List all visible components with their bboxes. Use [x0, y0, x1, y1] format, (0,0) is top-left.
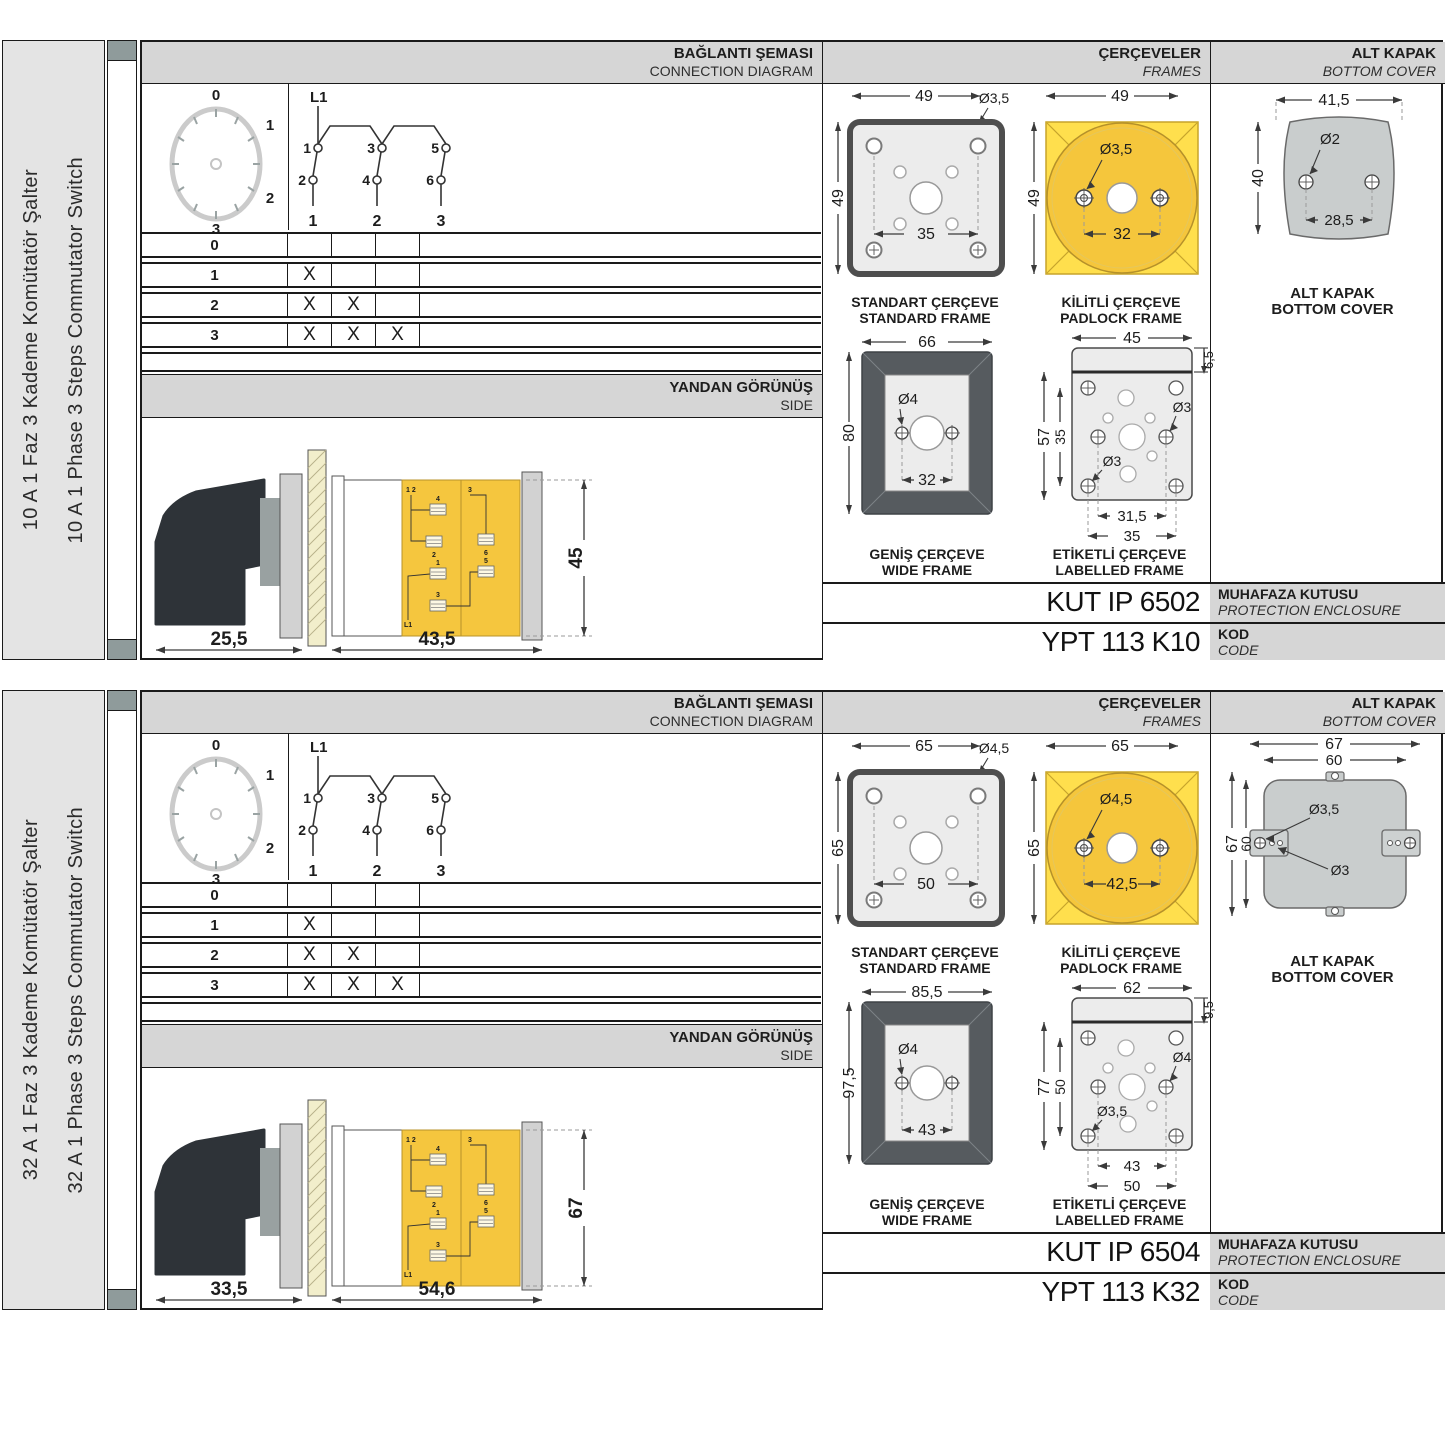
caption-en: WIDE FRAME [842, 562, 1012, 578]
mark-cell: X [288, 974, 332, 996]
rotary-dial-diagram: 0 1 2 3 [150, 86, 290, 236]
wide-frame-caption: GENİŞ ÇERÇEVE WIDE FRAME [842, 546, 1012, 578]
caption-en: LABELLED FRAME [1022, 1212, 1217, 1228]
header-title-tr: ÇERÇEVELER [823, 695, 1201, 713]
side-view-header: YANDAN GÖRÜNÜŞ SIDE [142, 1024, 822, 1068]
handle-hub [260, 1148, 280, 1236]
terminal-label: 4 [436, 496, 440, 503]
dim-width: 66 [918, 334, 936, 351]
dim-height: 97,5 [842, 1067, 858, 1098]
mounting-panel [308, 1100, 326, 1296]
labelled-frame-drawing: 62 9,5 [1022, 980, 1217, 1194]
mark-cell: X [332, 294, 376, 316]
switch-circuit-diagram: L1 1 3 5 2 4 6 1 2 [292, 86, 592, 234]
handle-hub [260, 498, 280, 586]
bottom-cover-caption: ALT KAPAK BOTTOM COVER [1220, 954, 1445, 986]
table-row: 2 X X [142, 942, 821, 968]
contact-5-label: 5 [431, 140, 439, 156]
standard-frame-drawing: 65 Ø4,5 65 50 [830, 736, 1020, 941]
mark-cell [332, 914, 376, 936]
caption-tr: ALT KAPAK [1220, 954, 1445, 970]
dim-hole: Ø4,5 [1100, 791, 1133, 808]
mark-cell [376, 884, 420, 906]
dim-hole: Ø4 [898, 391, 918, 408]
side-label-column: 32 A 1 Faz 3 Kademe Komütatör Şalter 32 … [2, 690, 105, 1310]
enclosure-code-value: KUT IP 6504 [823, 1234, 1210, 1272]
wide-frame-drawing: 85,5 Ø4 97,5 43 [842, 984, 1012, 1194]
position-cell: 3 [142, 974, 288, 996]
position-cell: 0 [142, 884, 288, 906]
standard-frame-caption: STANDART ÇERÇEVE STANDARD FRAME [830, 294, 1020, 326]
label-tr: MUHAFAZA KUTUSU [1218, 586, 1445, 602]
mark-cell: X [376, 974, 420, 996]
mark-cell [332, 234, 376, 256]
body-front [344, 480, 402, 636]
label-en: PROTECTION ENCLOSURE [1218, 602, 1445, 618]
dial-position-2: 2 [266, 190, 274, 207]
frames-header: ÇERÇEVELER FRAMES [823, 692, 1210, 734]
output-3-label: 3 [437, 863, 446, 880]
bottom-cover-header: ALT KAPAK BOTTOM COVER [1211, 42, 1445, 84]
caption-en: WIDE FRAME [842, 1212, 1012, 1228]
mark-cell [376, 234, 420, 256]
dim-width: 41,5 [1318, 92, 1349, 109]
phase-label: L1 [310, 739, 328, 756]
switch-handle [156, 1130, 264, 1274]
caption-en: BOTTOM COVER [1220, 970, 1445, 986]
dim-width: 49 [1111, 88, 1129, 105]
bottom-cover-caption: ALT KAPAK BOTTOM COVER [1220, 286, 1445, 318]
frames-header: ÇERÇEVELER FRAMES [823, 42, 1210, 84]
mark-cell [376, 914, 420, 936]
caption-tr: STANDART ÇERÇEVE [830, 294, 1020, 310]
contact-1-label: 1 [303, 790, 311, 806]
caption-en: LABELLED FRAME [1022, 562, 1217, 578]
dim-hole: Ø4 [898, 1041, 918, 1058]
switching-truth-table: 0 1 X 2 X X 3 X X X [142, 232, 821, 376]
labelled-frame-drawing: 45 6,5 [1022, 330, 1217, 544]
dim-height: 45 [566, 547, 587, 569]
dim-height-inner: 60 [1238, 836, 1254, 852]
caption-en: STANDARD FRAME [830, 960, 1020, 976]
switch-circuit-diagram: L1 1 3 5 2 4 6 1 2 [292, 736, 592, 884]
dim-inner-width: 31,5 [1117, 508, 1146, 525]
contact-2-label: 2 [298, 822, 306, 838]
labelled-frame-caption: ETİKETLİ ÇERÇEVE LABELLED FRAME [1022, 546, 1217, 578]
contact-2-label: 2 [298, 172, 306, 188]
switch-handle [156, 480, 264, 624]
caption-tr: ALT KAPAK [1220, 286, 1445, 302]
mark-cell: X [288, 324, 332, 346]
product-title-turkish: 32 A 1 Faz 3 Kademe Komütatör Şalter [20, 819, 43, 1180]
caption-tr: ETİKETLİ ÇERÇEVE [1022, 546, 1217, 562]
dim-hole: Ø3,5 [979, 90, 1010, 106]
mark-cell: X [332, 974, 376, 996]
contact-6-label: 6 [426, 822, 434, 838]
header-title-en: SIDE [142, 1047, 813, 1064]
datasheet-panel: BAĞLANTI ŞEMASI CONNECTION DIAGRAM ÇERÇE… [140, 690, 1443, 1310]
contact-6-label: 6 [426, 172, 434, 188]
header-title-tr: ALT KAPAK [1211, 695, 1436, 713]
binder-tab-top [107, 40, 137, 61]
position-cell: 1 [142, 264, 288, 286]
padlock-frame-drawing: 65 Ø4,5 42,5 65 [1026, 736, 1216, 941]
mark-cell: X [288, 264, 332, 286]
padlock-frame-caption: KİLİTLİ ÇERÇEVE PADLOCK FRAME [1026, 944, 1216, 976]
catalog-page: 10 A 1 Faz 3 Kademe Komütatör Şalter 10 … [0, 0, 1445, 1445]
caption-tr: ETİKETLİ ÇERÇEVE [1022, 1196, 1217, 1212]
dim-outer-width: 35 [1124, 528, 1141, 544]
connection-diagram-header: BAĞLANTI ŞEMASI CONNECTION DIAGRAM [142, 42, 822, 84]
product-code-value: YPT 113 K32 [823, 1274, 1210, 1310]
binder-tab-top [107, 690, 137, 711]
terminal-label: 3 [468, 1137, 472, 1144]
dim-hole-top: Ø3,5 [1309, 801, 1340, 817]
terminal-label: 3 [436, 1242, 440, 1249]
mark-cell: X [332, 944, 376, 966]
dim-inner: 43 [918, 1122, 936, 1139]
terminal-label: 6 [484, 1200, 488, 1207]
mark-cell [288, 234, 332, 256]
caption-tr: GENİŞ ÇERÇEVE [842, 1196, 1012, 1212]
dim-height: 80 [842, 424, 858, 442]
mark-cell: X [288, 294, 332, 316]
dim-strip: 9,5 [1201, 1001, 1216, 1019]
contact-3-label: 3 [367, 140, 375, 156]
label-tr: MUHAFAZA KUTUSU [1218, 1236, 1445, 1252]
dim-hole: Ø3,5 [1100, 141, 1133, 158]
terminal-label: 5 [484, 558, 488, 565]
dim-height: 40 [1250, 169, 1267, 187]
table-row: 1 X [142, 912, 821, 938]
product-section: 10 A 1 Faz 3 Kademe Komütatör Şalter 10 … [0, 40, 1445, 660]
mark-cell: X [288, 914, 332, 936]
standard-frame-drawing: 49 Ø3,5 49 35 [830, 86, 1020, 291]
mark-cell [332, 264, 376, 286]
dim-hole: Ø2 [1320, 131, 1340, 148]
terminal-label: 6 [484, 550, 488, 557]
dim-strip: 6,5 [1201, 351, 1216, 369]
dim-hole-left: Ø3,5 [1097, 1103, 1128, 1119]
mark-cell [288, 884, 332, 906]
dim-height: 77 [1036, 1078, 1053, 1096]
header-title-en: CONNECTION DIAGRAM [142, 713, 813, 730]
label-tr: KOD [1218, 626, 1445, 642]
column-divider [822, 42, 823, 658]
label-tr: KOD [1218, 1276, 1445, 1292]
output-3-label: 3 [437, 213, 446, 230]
terminal-label: 1 2 [406, 487, 416, 494]
label-en: CODE [1218, 642, 1445, 658]
rotary-dial-diagram: 0 1 2 3 [150, 736, 290, 886]
enclosure-label: MUHAFAZA KUTUSU PROTECTION ENCLOSURE [1210, 584, 1445, 622]
terminal-label: 1 [436, 1210, 440, 1217]
back-plate [522, 1122, 542, 1290]
side-label-column: 10 A 1 Faz 3 Kademe Komütatör Şalter 10 … [2, 40, 105, 660]
product-section: 32 A 1 Faz 3 Kademe Komütatör Şalter 32 … [0, 690, 1445, 1310]
mark-cell [376, 944, 420, 966]
contact-1-label: 1 [303, 140, 311, 156]
mark-cell [332, 884, 376, 906]
table-row: 2 X X [142, 292, 821, 318]
mark-cell [376, 264, 420, 286]
body-front [344, 1130, 402, 1286]
dim-height: 49 [830, 189, 847, 207]
front-plate [280, 1124, 302, 1288]
output-2-label: 2 [373, 213, 382, 230]
header-title-tr: BAĞLANTI ŞEMASI [142, 695, 813, 713]
dim-hole-mid: Ø3 [1331, 862, 1350, 878]
table-row-empty [142, 1002, 821, 1022]
datasheet-panel: BAĞLANTI ŞEMASI CONNECTION DIAGRAM ÇERÇE… [140, 40, 1443, 660]
contact-4-label: 4 [362, 172, 370, 188]
dim-width-inner: 60 [1326, 752, 1343, 769]
dial-position-2: 2 [266, 840, 274, 857]
output-1-label: 1 [309, 213, 318, 230]
table-row: 0 [142, 232, 821, 258]
dial-position-1: 1 [266, 117, 274, 134]
position-cell: 3 [142, 324, 288, 346]
dim-height: 67 [566, 1197, 587, 1218]
terminal-label: 4 [436, 1146, 440, 1153]
dim-width: 45 [1123, 330, 1141, 347]
terminal-label: 2 [432, 552, 436, 559]
terminal-label: 1 2 [406, 1137, 416, 1144]
dim-width: 65 [1111, 738, 1129, 755]
terminal-label: 3 [468, 487, 472, 494]
contact-3-label: 3 [367, 790, 375, 806]
dim-hole-right: Ø4 [1173, 1049, 1192, 1065]
table-row: 3 X X X [142, 972, 821, 998]
standard-frame-caption: STANDART ÇERÇEVE STANDARD FRAME [830, 944, 1020, 976]
contact-5-label: 5 [431, 790, 439, 806]
label-en: CODE [1218, 1292, 1445, 1308]
mark-cell: X [376, 324, 420, 346]
binder-tab-bottom [107, 1289, 137, 1310]
header-title-en: FRAMES [823, 63, 1201, 80]
side-view-drawing: 1 2 4 2 3 6 1 5 3 L1 45 25,5 43,5 [146, 420, 706, 660]
dim-height: 65 [1026, 839, 1043, 857]
header-title-en: BOTTOM COVER [1211, 713, 1436, 730]
dim-inner: 42,5 [1106, 876, 1137, 893]
table-row: 1 X [142, 262, 821, 288]
mark-cell: X [288, 944, 332, 966]
caption-tr: GENİŞ ÇERÇEVE [842, 546, 1012, 562]
dim-width: 62 [1123, 980, 1141, 997]
caption-en: STANDARD FRAME [830, 310, 1020, 326]
position-cell: 2 [142, 944, 288, 966]
enclosure-row: KUT IP 6504 MUHAFAZA KUTUSU PROTECTION E… [823, 1232, 1445, 1272]
header-title-tr: YANDAN GÖRÜNÜŞ [142, 1029, 813, 1047]
switching-truth-table: 0 1 X 2 X X 3 X X X [142, 882, 821, 1026]
product-code-row: YPT 113 K10 KOD CODE [823, 622, 1445, 660]
side-view-drawing: 1 2 4 2 3 6 1 5 3 L1 67 33,5 54,6 [146, 1070, 706, 1310]
caption-en: BOTTOM COVER [1220, 302, 1445, 318]
output-1-label: 1 [309, 863, 318, 880]
dial-position-1: 1 [266, 767, 274, 784]
dim-inner-width: 43 [1124, 1158, 1141, 1175]
dim-inner: 32 [1113, 226, 1131, 243]
header-title-tr: YANDAN GÖRÜNÜŞ [142, 379, 813, 397]
dim-body-depth: 43,5 [419, 629, 456, 650]
dial-position-0: 0 [212, 737, 220, 754]
wide-frame-drawing: 66 Ø4 80 32 [842, 334, 1012, 544]
dim-height: 49 [1026, 189, 1043, 207]
spacer [332, 1126, 344, 1286]
front-plate [280, 474, 302, 638]
contact-4-label: 4 [362, 822, 370, 838]
code-label: KOD CODE [1210, 1274, 1445, 1310]
padlock-frame-drawing: 49 Ø3,5 32 49 [1026, 86, 1216, 291]
dim-inner: 50 [917, 876, 935, 893]
dim-hole-left: Ø3 [1103, 453, 1122, 469]
dim-inner: 35 [917, 226, 935, 243]
caption-en: PADLOCK FRAME [1026, 960, 1216, 976]
terminal-label: 3 [436, 592, 440, 599]
spacer [332, 476, 344, 636]
dim-width: 49 [915, 88, 933, 105]
connection-diagram-header: BAĞLANTI ŞEMASI CONNECTION DIAGRAM [142, 692, 822, 734]
dim-body-depth: 54,6 [419, 1279, 456, 1300]
terminal-label: 2 [432, 1202, 436, 1209]
dim-width-outer: 67 [1325, 736, 1343, 753]
product-code-value: YPT 113 K10 [823, 624, 1210, 660]
terminal-label: 5 [484, 1208, 488, 1215]
dim-width: 85,5 [911, 984, 942, 1001]
product-title-english: 32 A 1 Phase 3 Steps Commutator Switch [65, 807, 88, 1194]
dim-outer-width: 50 [1124, 1178, 1141, 1194]
dim-inner: 32 [918, 472, 936, 489]
position-cell: 0 [142, 234, 288, 256]
mounting-panel [308, 450, 326, 646]
bottom-cover-header: ALT KAPAK BOTTOM COVER [1211, 692, 1445, 734]
table-row: 0 [142, 882, 821, 908]
product-title-english: 10 A 1 Phase 3 Steps Commutator Switch [65, 157, 88, 544]
dim-inner-height: 50 [1052, 1079, 1068, 1095]
caption-tr: STANDART ÇERÇEVE [830, 944, 1020, 960]
bottom-cover-drawing: 67 60 Ø3,5 Ø3 67 [1220, 736, 1445, 951]
side-view-header: YANDAN GÖRÜNÜŞ SIDE [142, 374, 822, 418]
phase-label: L1 [310, 89, 328, 106]
header-title-en: SIDE [142, 397, 813, 414]
binder-strip [107, 40, 137, 660]
dial-position-0: 0 [212, 87, 220, 104]
wide-frame-caption: GENİŞ ÇERÇEVE WIDE FRAME [842, 1196, 1012, 1228]
caption-tr: KİLİTLİ ÇERÇEVE [1026, 294, 1216, 310]
binder-tab-bottom [107, 639, 137, 660]
binder-strip [107, 690, 137, 1310]
header-title-en: FRAMES [823, 713, 1201, 730]
dim-inner-height: 35 [1052, 429, 1068, 445]
position-cell: 2 [142, 294, 288, 316]
mark-cell: X [332, 324, 376, 346]
column-divider [822, 692, 823, 1308]
enclosure-label: MUHAFAZA KUTUSU PROTECTION ENCLOSURE [1210, 1234, 1445, 1272]
dim-inner: 28,5 [1324, 212, 1353, 229]
product-title-turkish: 10 A 1 Faz 3 Kademe Komütatör Şalter [20, 169, 43, 530]
labelled-frame-caption: ETİKETLİ ÇERÇEVE LABELLED FRAME [1022, 1196, 1217, 1228]
code-label: KOD CODE [1210, 624, 1445, 660]
dim-hole: Ø4,5 [979, 740, 1010, 756]
dim-height: 57 [1036, 428, 1053, 446]
dim-hole-right: Ø3 [1173, 399, 1192, 415]
bottom-cover-drawing: 41,5 Ø2 40 28,5 [1220, 88, 1445, 283]
table-row: 3 X X X [142, 322, 821, 348]
dim-handle-depth: 33,5 [211, 1279, 248, 1300]
dim-height: 65 [830, 839, 847, 857]
table-row-empty [142, 352, 821, 372]
enclosure-code-value: KUT IP 6502 [823, 584, 1210, 622]
header-title-tr: ÇERÇEVELER [823, 45, 1201, 63]
caption-en: PADLOCK FRAME [1026, 310, 1216, 326]
header-title-en: BOTTOM COVER [1211, 63, 1436, 80]
header-title-en: CONNECTION DIAGRAM [142, 63, 813, 80]
product-code-row: YPT 113 K32 KOD CODE [823, 1272, 1445, 1310]
header-title-tr: BAĞLANTI ŞEMASI [142, 45, 813, 63]
mark-cell [376, 294, 420, 316]
header-title-tr: ALT KAPAK [1211, 45, 1436, 63]
caption-tr: KİLİTLİ ÇERÇEVE [1026, 944, 1216, 960]
label-en: PROTECTION ENCLOSURE [1218, 1252, 1445, 1268]
enclosure-row: KUT IP 6502 MUHAFAZA KUTUSU PROTECTION E… [823, 582, 1445, 622]
dim-handle-depth: 25,5 [211, 629, 248, 650]
padlock-frame-caption: KİLİTLİ ÇERÇEVE PADLOCK FRAME [1026, 294, 1216, 326]
output-2-label: 2 [373, 863, 382, 880]
terminal-label: L1 [404, 1272, 412, 1279]
terminal-label: L1 [404, 622, 412, 629]
dim-width: 65 [915, 738, 933, 755]
back-plate [522, 472, 542, 640]
position-cell: 1 [142, 914, 288, 936]
terminal-label: 1 [436, 560, 440, 567]
